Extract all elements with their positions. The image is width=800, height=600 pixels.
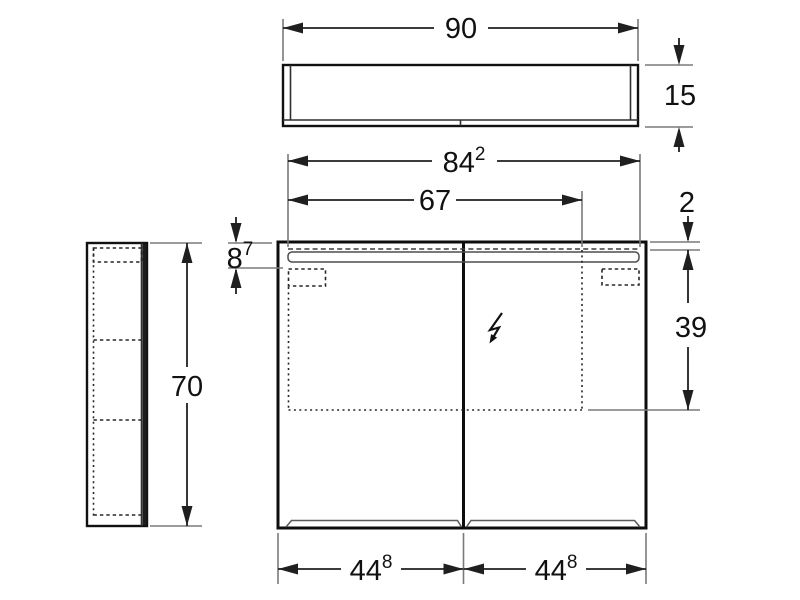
arrowhead-right (444, 564, 464, 575)
dim-value: 44 (535, 555, 567, 587)
dim-light-width: 67 (288, 185, 582, 247)
arrowhead-left (278, 564, 298, 575)
handle-left-door (286, 521, 462, 528)
arrowhead-left (288, 195, 308, 206)
dim-inner-height: 39 (588, 250, 707, 410)
dim-label-light-width: 67 (419, 185, 451, 217)
drawing-canvas: 90 15 70 (0, 0, 800, 600)
front-view (278, 242, 646, 528)
side-view (87, 243, 147, 526)
arrowhead-left (288, 156, 308, 167)
arrowhead-left (464, 564, 484, 575)
dim-mirror-width: 842 (288, 144, 640, 247)
lightning-bolt-arrowhead (490, 334, 498, 343)
dim-label-door-right-width: 448 (535, 552, 578, 587)
dim-value: 8 (227, 243, 243, 275)
side-view-outline (87, 243, 147, 526)
arrowhead-right (618, 23, 638, 34)
hinge-right-hidden (602, 269, 639, 285)
arrowhead-up (683, 250, 694, 270)
handle-right-door (467, 521, 641, 528)
dim-value: 44 (350, 555, 382, 587)
lightning-bolt-icon (490, 313, 503, 344)
dim-label-top-width: 90 (445, 13, 477, 45)
dim-label-top-gap: 2 (679, 187, 695, 219)
hinge-left-hidden (289, 269, 326, 286)
dim-top-gap: 2 (650, 187, 700, 250)
dim-hinge-offset: 87 (227, 217, 283, 294)
arrowhead-down (683, 222, 694, 242)
dim-label-height: 70 (171, 371, 203, 403)
top-view-outline (283, 65, 638, 126)
dim-label-mirror-width: 842 (443, 144, 486, 179)
arrowhead-right (626, 564, 646, 575)
dim-label-inner-height: 39 (675, 312, 707, 344)
arrowhead-down (182, 506, 193, 526)
arrowhead-right (620, 156, 640, 167)
technical-drawing: 90 15 70 (0, 0, 800, 600)
top-view (283, 65, 638, 126)
dim-superscript: 8 (567, 552, 578, 573)
dim-superscript: 8 (382, 552, 393, 573)
dim-label-top-depth: 15 (664, 80, 696, 112)
side-view-light-module-hidden (94, 248, 142, 262)
dim-label-hinge-offset: 87 (227, 239, 254, 275)
dim-height: 70 (150, 243, 203, 526)
arrowhead-right (562, 195, 582, 206)
dim-value: 84 (443, 147, 475, 179)
dim-top-depth: 15 (645, 38, 696, 152)
dim-superscript: 7 (243, 239, 254, 260)
arrowhead-left (283, 23, 303, 34)
arrowhead-down (683, 390, 694, 410)
side-view-mirror-door-edge (143, 244, 147, 525)
dim-label-door-left-width: 448 (350, 552, 393, 587)
arrowhead-down (231, 223, 242, 243)
dim-top-width: 90 (283, 13, 638, 61)
dim-superscript: 2 (475, 144, 486, 165)
lightning-bolt-stroke (490, 313, 502, 337)
arrowhead-down (674, 45, 685, 65)
arrowhead-up (674, 127, 685, 147)
dim-door-right-width: 448 (464, 533, 646, 587)
arrowhead-up (182, 243, 193, 263)
dim-door-left-width: 448 (278, 533, 464, 587)
